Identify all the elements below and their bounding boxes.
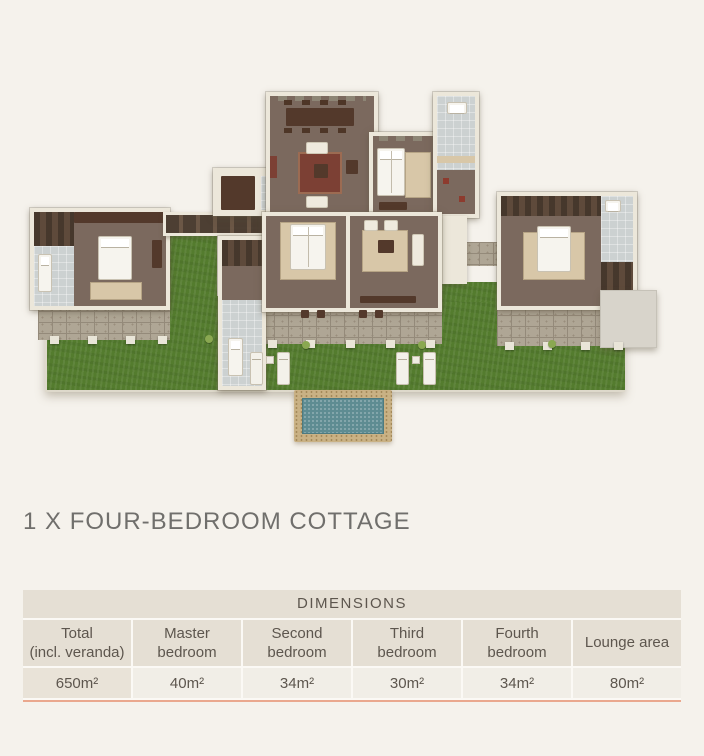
decor-accent-2 [459, 196, 465, 202]
master-rug [90, 282, 142, 300]
twin-beds [290, 224, 326, 270]
double-bed [537, 226, 571, 272]
bar-stool [359, 310, 367, 318]
sun-lounger [277, 352, 290, 385]
bedroom-rug [405, 152, 431, 198]
bar-stool [317, 310, 325, 318]
lounger-side-table [412, 356, 420, 364]
coffee-table [378, 240, 394, 253]
table-value-row: 650m² 40m² 34m² 30m² 34m² 80m² [23, 668, 681, 698]
value-second-bedroom: 34m² [243, 668, 351, 698]
shrub [302, 341, 310, 349]
dining-chairs [284, 100, 354, 105]
master-suite [30, 208, 170, 310]
lawn-strip-left [167, 232, 217, 302]
table-header-row: Total (incl. veranda) Master bedroom Sec… [23, 620, 681, 666]
value-total: 650m² [23, 668, 131, 698]
veranda-post [614, 342, 623, 350]
column-header-fourth-bedroom: Fourth bedroom [463, 620, 571, 666]
third-bathroom-wing [433, 92, 479, 218]
window-strip [379, 136, 429, 141]
vanity [437, 156, 475, 163]
veranda-post [505, 342, 514, 350]
shrub [205, 335, 213, 343]
veranda-post [268, 340, 277, 348]
sofa [306, 142, 328, 154]
veranda-post [426, 340, 435, 348]
page-title: 1 X FOUR-BEDROOM COTTAGE [23, 508, 411, 536]
master-bathroom [34, 246, 74, 306]
central-block [262, 212, 442, 312]
third-bedroom [369, 132, 439, 216]
sun-lounger [396, 352, 409, 385]
column-header-master-bedroom: Master bedroom [133, 620, 241, 666]
lounger-side-table [266, 356, 274, 364]
hall [437, 170, 475, 214]
dimensions-table: DIMENSIONS Total (incl. veranda) Master … [23, 590, 681, 702]
armchair-2 [384, 220, 398, 231]
flat-roof-extension [600, 290, 657, 348]
hallway [222, 266, 262, 300]
master-closet [34, 212, 74, 246]
column-header-second-bedroom: Second bedroom [243, 620, 351, 666]
brochure-page: 1 X FOUR-BEDROOM COTTAGE DIMENSIONS Tota… [0, 0, 704, 756]
shrub [548, 340, 556, 348]
sun-lounger [423, 352, 436, 385]
entry-storage [221, 176, 255, 210]
master-bed [98, 236, 132, 280]
bar-stool [301, 310, 309, 318]
shrub [418, 341, 426, 349]
lounge-area [354, 216, 438, 308]
veranda-post [581, 342, 590, 350]
sun-lounger [250, 352, 263, 385]
second-bedroom [266, 216, 350, 308]
sofa [412, 234, 424, 266]
value-master-bedroom: 40m² [133, 668, 241, 698]
walkway-to-right-cottage [465, 242, 497, 266]
fireplace [270, 156, 277, 178]
fourth-bathroom [601, 196, 633, 262]
veranda-post [126, 336, 135, 344]
sofa-2 [306, 196, 328, 208]
column-header-total: Total (incl. veranda) [23, 620, 131, 666]
master-wardrobe [74, 212, 166, 223]
dining-chairs-2 [284, 128, 354, 133]
lawn-strip-right [442, 282, 497, 302]
bar-stool [375, 310, 383, 318]
table-title: DIMENSIONS [23, 590, 681, 618]
column-header-lounge-area: Lounge area [573, 620, 681, 666]
coffee-table [314, 164, 328, 178]
bathtub [447, 102, 467, 114]
value-fourth-bedroom: 34m² [463, 668, 571, 698]
armchair [364, 220, 378, 231]
linen-closet [222, 240, 262, 266]
plunge-pool [302, 398, 384, 434]
veranda-post [88, 336, 97, 344]
accent-underline [23, 700, 681, 702]
value-lounge-area: 80m² [573, 668, 681, 698]
floorplan-illustration [0, 0, 704, 480]
dresser [379, 202, 407, 210]
master-dresser [152, 240, 162, 268]
dressing-area [501, 196, 601, 216]
dining-table [286, 108, 354, 126]
bathtub [38, 254, 52, 292]
decor-accent [443, 178, 449, 184]
twin-beds [377, 148, 405, 196]
veranda-post [50, 336, 59, 344]
media-console [360, 296, 416, 303]
veranda-post [158, 336, 167, 344]
guest-bathtub [228, 338, 243, 376]
bathtub [605, 200, 621, 212]
armchair-dark [346, 160, 358, 174]
veranda-post [386, 340, 395, 348]
column-header-third-bedroom: Third bedroom [353, 620, 461, 666]
value-third-bedroom: 30m² [353, 668, 461, 698]
veranda-post [346, 340, 355, 348]
pool-deck [294, 390, 392, 442]
